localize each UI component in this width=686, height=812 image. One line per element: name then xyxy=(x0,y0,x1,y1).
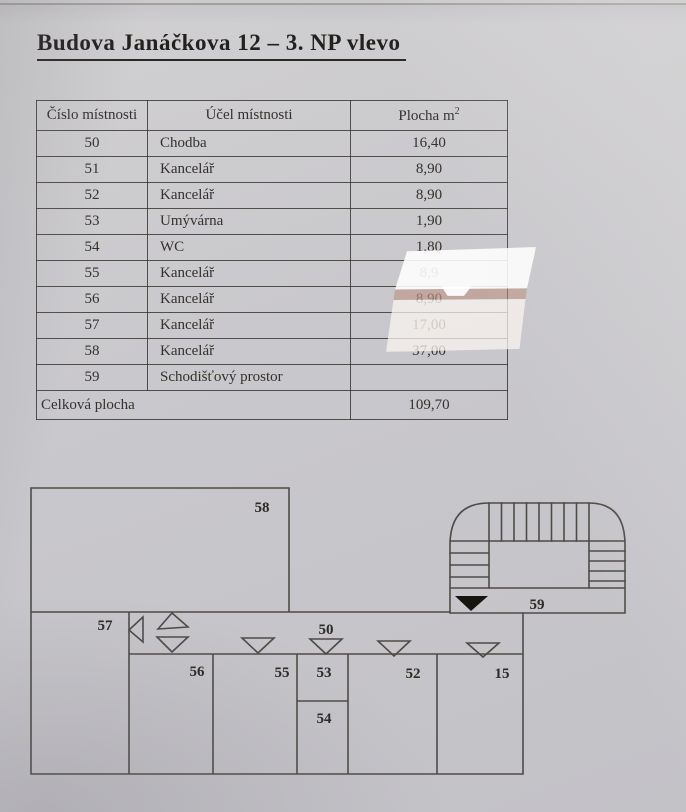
room-label-57: 57 xyxy=(98,618,114,634)
room-label-15: 15 xyxy=(495,666,510,682)
stair-direction-arrow-icon xyxy=(455,596,488,611)
room-label-58: 58 xyxy=(255,500,270,516)
room-label-55: 55 xyxy=(275,665,290,681)
door-swing-icon-room15 xyxy=(467,643,499,657)
room-label-50: 50 xyxy=(319,622,334,638)
floor-plan: 58 57 50 56 55 53 54 52 15 59 xyxy=(0,0,686,812)
room-label-56: 56 xyxy=(190,664,206,680)
room-label-59: 59 xyxy=(530,597,545,613)
door-swing-icon-room56 xyxy=(157,637,188,652)
room-label-54: 54 xyxy=(317,711,333,727)
staircase-treads xyxy=(450,503,625,588)
room-label-53: 53 xyxy=(317,665,332,681)
room-label-52: 52 xyxy=(406,666,421,682)
door-swing-icon-room57 xyxy=(129,617,143,642)
door-swing-icon-room53 xyxy=(310,639,342,654)
door-swing-icon-room58 xyxy=(158,613,188,629)
door-swing-icon-room55 xyxy=(242,638,274,653)
photographed-document: { "page": { "title": "Budova Janáčkova 1… xyxy=(0,0,686,812)
